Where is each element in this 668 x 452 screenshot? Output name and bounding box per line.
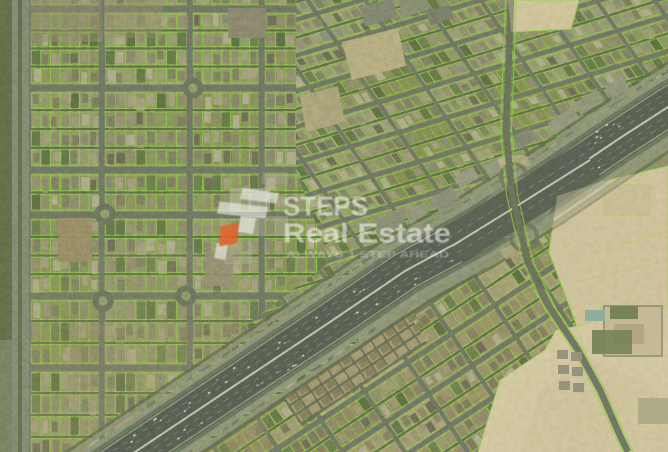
svg-text:Real Estate: Real Estate: [283, 218, 451, 249]
svg-text:ALWAYS 1 STEP AHEAD: ALWAYS 1 STEP AHEAD: [286, 250, 449, 261]
